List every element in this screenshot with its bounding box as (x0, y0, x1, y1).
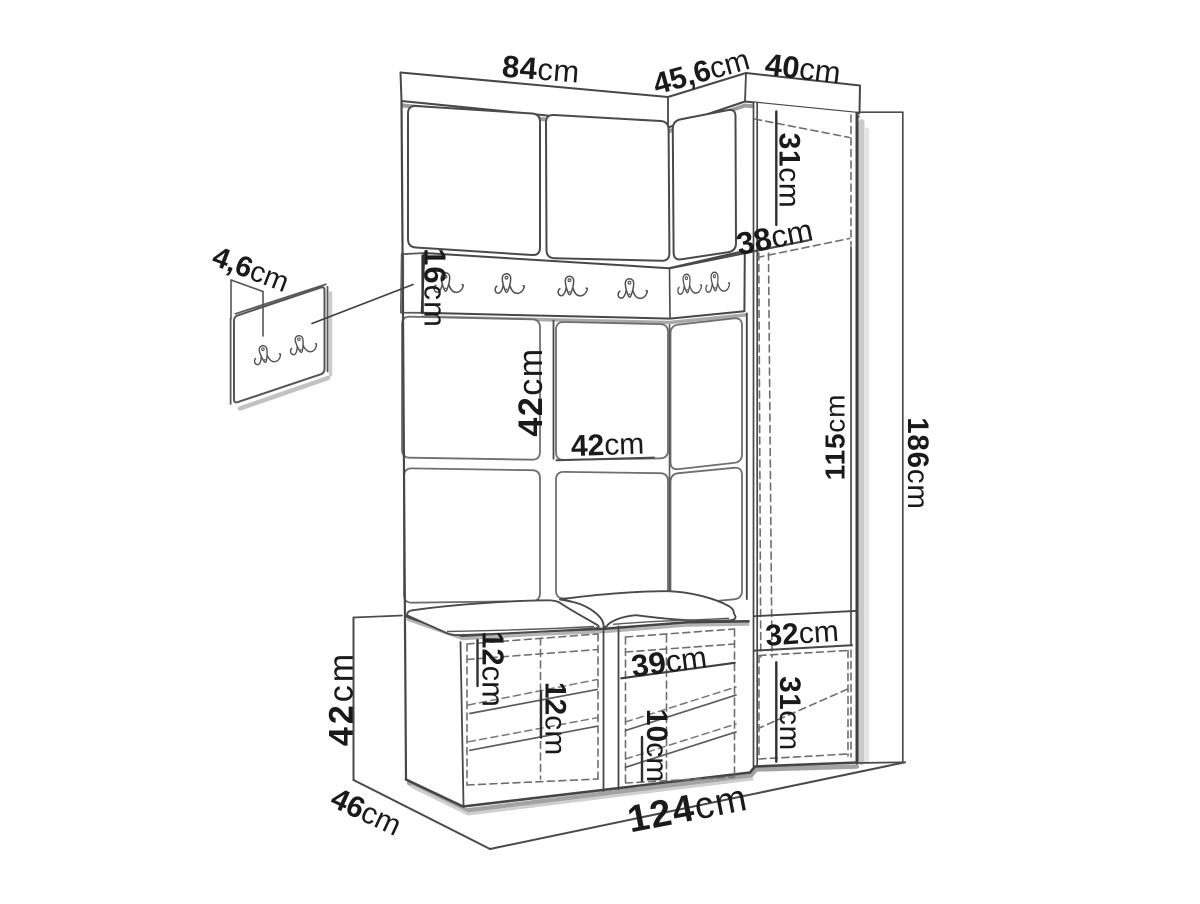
svg-text:31cm: 31cm (773, 133, 806, 209)
svg-text:16cm: 16cm (417, 248, 452, 328)
svg-text:31cm: 31cm (773, 676, 806, 751)
svg-text:42cm: 42cm (322, 651, 360, 746)
svg-text:84cm: 84cm (501, 49, 581, 90)
svg-text:115cm: 115cm (820, 394, 851, 481)
svg-text:42cm: 42cm (570, 428, 644, 464)
svg-text:10cm: 10cm (640, 709, 673, 782)
svg-text:32cm: 32cm (764, 615, 839, 653)
svg-text:12cm: 12cm (539, 682, 572, 755)
svg-text:42cm: 42cm (512, 347, 550, 436)
svg-text:186cm: 186cm (901, 417, 934, 510)
svg-text:12cm: 12cm (475, 631, 510, 707)
